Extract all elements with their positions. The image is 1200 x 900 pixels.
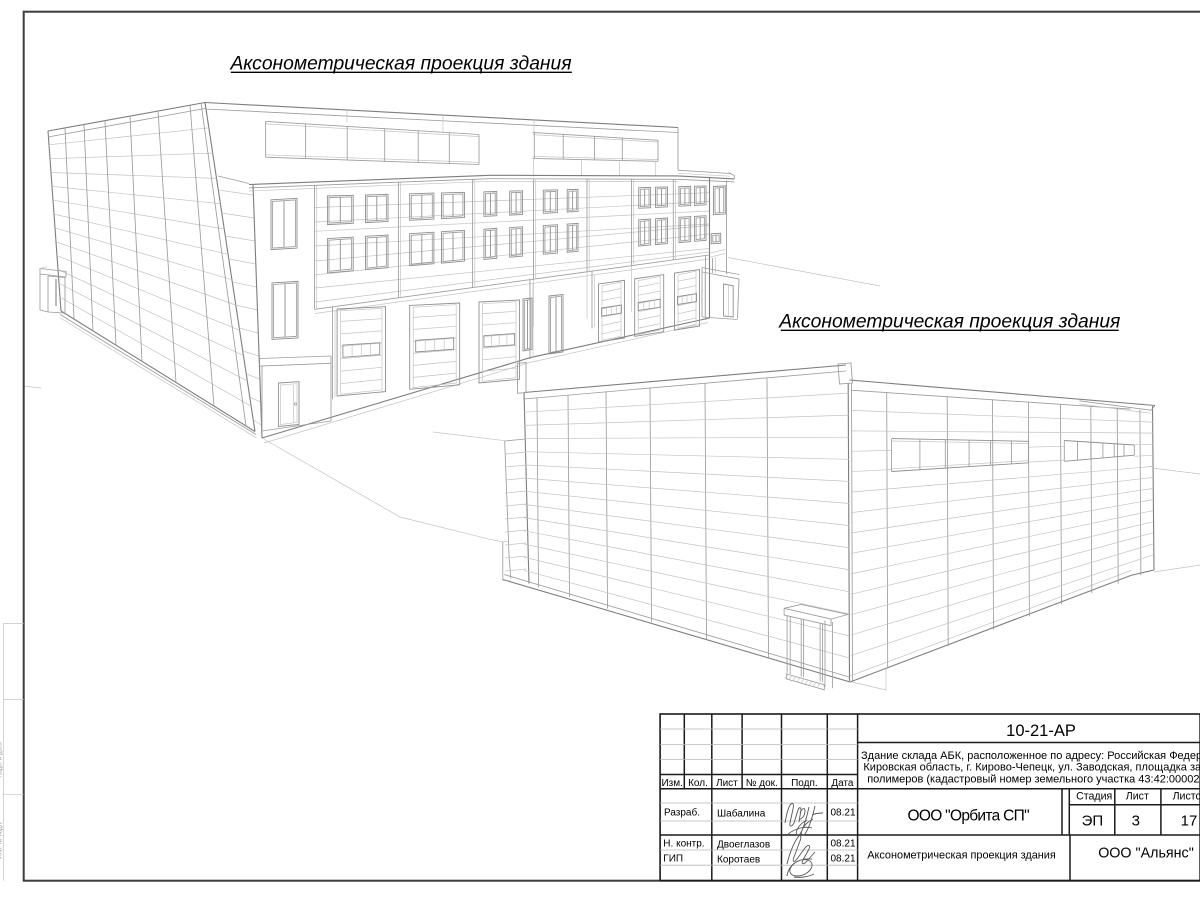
svg-text:Кол.: Кол. — [688, 778, 708, 789]
svg-text:08.21: 08.21 — [831, 808, 856, 819]
svg-text:Н. контр.: Н. контр. — [663, 839, 704, 850]
svg-text:Коротаев: Коротаев — [717, 855, 760, 866]
svg-text:Двоеглазов: Двоеглазов — [717, 840, 770, 851]
svg-text:Дата: Дата — [831, 778, 854, 789]
svg-text:3: 3 — [1132, 812, 1140, 829]
svg-text:Изм.: Изм. — [661, 778, 682, 789]
svg-text:№ док.: № док. — [746, 778, 778, 789]
svg-text:Подп. и дата: Подп. и дата — [0, 742, 4, 778]
svg-text:Инв. № подл.: Инв. № подл. — [0, 821, 4, 859]
svg-text:ГИП: ГИП — [663, 854, 683, 865]
svg-text:ООО "Орбита СП": ООО "Орбита СП" — [908, 807, 1030, 824]
svg-text:ЭП: ЭП — [1082, 812, 1104, 829]
svg-text:17: 17 — [1181, 812, 1198, 829]
svg-text:ООО "Альянс": ООО "Альянс" — [1098, 846, 1194, 862]
svg-text:08.21: 08.21 — [831, 839, 856, 850]
svg-text:Стадия: Стадия — [1076, 791, 1112, 803]
svg-text:Шабалина: Шабалина — [717, 808, 766, 820]
svg-text:Лист: Лист — [1126, 791, 1149, 803]
svg-text:Аксонометрическая проекция зда: Аксонометрическая проекция здания — [229, 54, 571, 75]
svg-text:10-21-АР: 10-21-АР — [1006, 722, 1076, 740]
svg-text:Подп.: Подп. — [791, 778, 818, 789]
svg-text:Аксонометрическая проекция зда: Аксонометрическая проекция здания — [778, 312, 1120, 333]
svg-text:Аксонометрическая проекция зда: Аксонометрическая проекция здания — [867, 850, 1056, 862]
svg-text:Лист: Лист — [716, 778, 738, 789]
svg-text:полимеров (кадастровый номер з: полимеров (кадастровый номер земельного … — [867, 774, 1200, 786]
svg-text:Кировская область, г. Кирово-Ч: Кировская область, г. Кирово-Чепецк, ул.… — [863, 762, 1200, 774]
svg-text:Здание склада АБК, расположенн: Здание склада АБК, расположенное по адре… — [861, 750, 1200, 762]
svg-text:Листов: Листов — [1173, 791, 1200, 803]
svg-text:Разраб.: Разраб. — [664, 807, 700, 819]
svg-text:08.21: 08.21 — [831, 854, 856, 865]
